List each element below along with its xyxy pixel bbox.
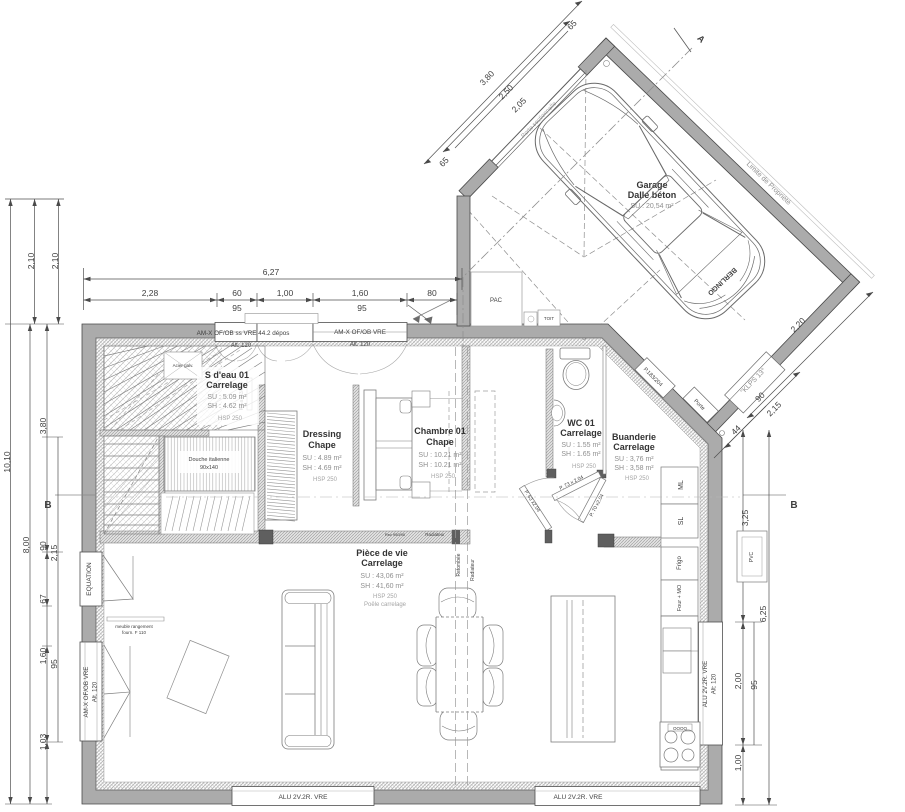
svg-text:10,10: 10,10 [2,451,12,473]
svg-text:90: 90 [38,541,48,551]
svg-text:HSP 250: HSP 250 [218,416,243,422]
svg-text:6,27: 6,27 [263,267,280,277]
svg-text:meuble rangement: meuble rangement [115,624,153,629]
svg-text:1,60: 1,60 [352,288,369,298]
svg-text:2,10: 2,10 [50,252,60,269]
svg-text:EQUATION: EQUATION [86,562,93,596]
svg-text:95: 95 [749,680,759,690]
svg-text:HSP 250: HSP 250 [625,476,650,482]
svg-text:Alt. 120: Alt. 120 [93,681,99,702]
svg-text:80: 80 [427,288,437,298]
svg-text:ALU 2V.2R. VRE: ALU 2V.2R. VRE [279,794,329,801]
svg-text:Acier galv.: Acier galv. [173,363,194,368]
svg-text:2,00: 2,00 [733,672,743,689]
svg-text:ML: ML [678,480,685,490]
svg-text:Carrelage: Carrelage [560,428,602,438]
svg-text:Frigo: Frigo [677,556,683,570]
svg-text:SH : 1.65 m²: SH : 1.65 m² [561,451,601,458]
svg-text:3,80: 3,80 [38,417,48,434]
svg-text:1,00: 1,00 [277,288,294,298]
svg-text:60: 60 [232,288,242,298]
svg-text:Chape: Chape [426,437,454,447]
svg-text:1,60: 1,60 [38,647,48,664]
svg-text:Douche italienne: Douche italienne [189,457,230,463]
svg-text:TOIT: TOIT [544,316,554,321]
svg-text:SU : 4.89 m²: SU : 4.89 m² [302,455,342,462]
svg-text:SU : 5.09 m²: SU : 5.09 m² [207,394,247,401]
svg-text:PAC: PAC [490,298,503,304]
svg-text:1,00: 1,00 [733,754,743,771]
svg-text:Radiateur: Radiateur [425,532,445,537]
svg-text:AM-X OF/OB VRE: AM-X OF/OB VRE [83,667,90,718]
svg-text:SU : 1.55 m²: SU : 1.55 m² [561,442,601,449]
svg-text:SU : 3,76 m²: SU : 3,76 m² [614,456,654,463]
svg-text:Pièce de vie: Pièce de vie [356,548,408,558]
svg-text:Retombée: Retombée [456,553,462,576]
svg-text:AM-X OF/OB VRE: AM-X OF/OB VRE [334,329,386,336]
svg-text:SU : 20,54 m²: SU : 20,54 m² [630,203,674,210]
svg-text:SH : 4.69 m²: SH : 4.69 m² [302,465,342,472]
svg-text:Chape: Chape [308,440,336,450]
svg-text:90x140: 90x140 [200,465,218,471]
svg-text:Carrelage: Carrelage [361,558,403,568]
svg-text:2,28: 2,28 [142,288,159,298]
svg-text:Carrelage: Carrelage [613,442,655,452]
svg-text:AM-X OF/OB ss VRE 44.2 dépos: AM-X OF/OB ss VRE 44.2 dépos [197,330,290,337]
svg-text:SH : 3,58 m²: SH : 3,58 m² [614,465,654,472]
svg-text:B: B [44,500,51,511]
svg-text:B: B [790,500,797,511]
svg-text:Chambre 01: Chambre 01 [414,426,466,436]
svg-text:fourn. F 110: fourn. F 110 [122,630,146,635]
svg-text:S d'eau 01: S d'eau 01 [205,370,249,380]
svg-text:Four + MO: Four + MO [677,584,683,611]
svg-text:6,25: 6,25 [758,605,768,622]
svg-text:1,03: 1,03 [38,733,48,750]
svg-text:Carrelage: Carrelage [206,380,248,390]
svg-text:95: 95 [232,303,242,313]
svg-text:SH : 4.62 m²: SH : 4.62 m² [207,403,247,410]
svg-text:2,10: 2,10 [26,252,36,269]
svg-text:Buanderie: Buanderie [612,432,656,442]
svg-text:PVC: PVC [749,551,755,562]
svg-text:Dalle béton: Dalle béton [628,190,677,200]
svg-text:HSP 250: HSP 250 [373,594,398,600]
svg-text:SU : 43,06 m²: SU : 43,06 m² [360,573,404,580]
svg-text:Poêle carrelage: Poêle carrelage [364,602,407,608]
svg-text:3,25: 3,25 [740,509,750,526]
svg-text:95: 95 [49,659,59,669]
svg-text:Dressing: Dressing [303,429,342,439]
svg-text:2,15: 2,15 [49,544,59,561]
svg-text:Radiateur: Radiateur [470,559,476,581]
svg-text:8,00: 8,00 [21,536,31,553]
svg-text:OOOO: OOOO [673,726,688,731]
svg-text:67: 67 [38,594,48,604]
svg-text:ALU 2V.2R. VRE: ALU 2V.2R. VRE [702,661,709,708]
svg-text:SH : 41,60 m²: SH : 41,60 m² [360,583,404,590]
svg-text:Alt: 120: Alt: 120 [712,673,718,694]
svg-text:Alt. 120: Alt. 120 [350,342,371,348]
svg-text:HSP 250: HSP 250 [313,477,338,483]
svg-text:ALU 2V.2R. VRE: ALU 2V.2R. VRE [554,794,604,801]
svg-text:HSP 250: HSP 250 [431,474,456,480]
svg-text:SL: SL [678,517,685,526]
svg-text:95: 95 [357,303,367,313]
svg-text:HSP 250: HSP 250 [572,464,597,470]
svg-text:WC 01: WC 01 [567,418,595,428]
svg-text:Rsv 950/90: Rsv 950/90 [385,532,406,537]
